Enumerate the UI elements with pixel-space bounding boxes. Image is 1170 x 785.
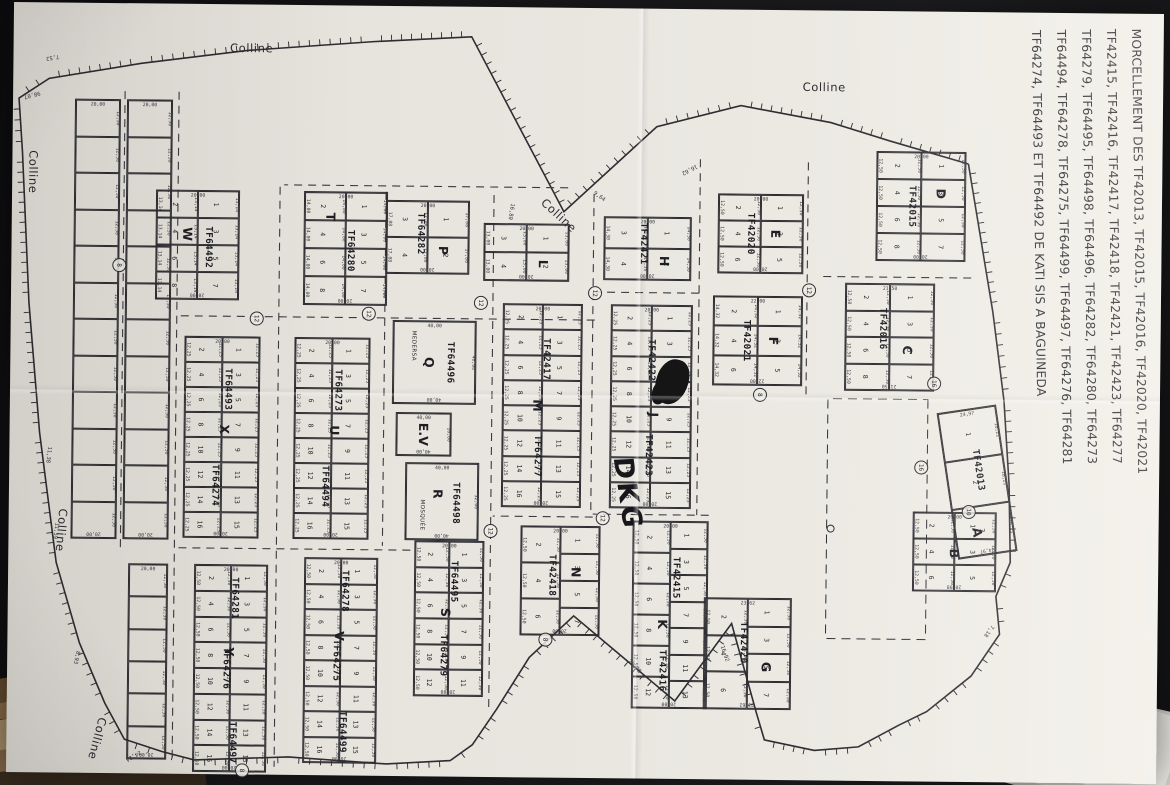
- lot-width-dim: 12,50: [665, 561, 670, 576]
- lot-cell: 12,50: [75, 136, 119, 173]
- lot-width-dim: 12,50: [916, 158, 921, 173]
- lot-width-dim: 13,14: [234, 224, 239, 239]
- lot-number: 9: [352, 671, 360, 675]
- lot-number: 11: [664, 440, 672, 448]
- lot-width-dim: 13,14: [192, 278, 197, 293]
- lot-cell: 12,50: [125, 392, 169, 429]
- lot-number: 6: [319, 260, 327, 264]
- lot-width-dim: 12,50: [111, 512, 116, 527]
- block-letter: P: [436, 245, 451, 254]
- lot-width-dim: 12,25: [295, 368, 300, 383]
- lot-number: 7: [352, 645, 360, 649]
- lot-cell: 712,25: [542, 380, 581, 406]
- lot-width-dim: 12,25: [576, 335, 581, 350]
- lot-cell: 1112,25: [541, 430, 580, 456]
- lot-number: 2: [720, 614, 728, 618]
- block-G: 112,50312,50512,50712,50212,5012,50412,5…: [703, 597, 792, 710]
- lot-depth-dim: 20,00: [339, 195, 354, 200]
- block-letter: H: [657, 255, 672, 266]
- lot-number: 1: [345, 349, 353, 353]
- lot-number: 8: [893, 244, 901, 248]
- lot-cell: 12,50: [126, 282, 170, 319]
- lot-cell: 512,50: [921, 206, 965, 233]
- lot-width-dim: 12,50: [166, 184, 171, 199]
- lot-number: 7: [682, 613, 690, 617]
- lot-width-dim: 14,32: [752, 362, 757, 377]
- lot-width-dim: 12,50: [304, 691, 309, 706]
- lot-cell: 12,50: [127, 136, 171, 173]
- lot-width-dim: 14,00: [305, 226, 310, 241]
- lot-number: 4: [535, 578, 543, 582]
- lot-width-dim: 12,50: [913, 570, 918, 585]
- lot-width-dim: 12,25: [294, 443, 299, 458]
- lot-number: 5: [234, 397, 242, 401]
- lot-row: 114,30214,30: [647, 217, 691, 279]
- lot-row: 112,25312,25512,25712,25912,251112,25131…: [330, 338, 369, 538]
- lot-width-dim: 12,50: [195, 570, 200, 585]
- lot-width-dim: 12,50: [160, 735, 165, 750]
- lot-width-dim: 12,50: [719, 200, 724, 215]
- lot-number: 8: [319, 288, 327, 292]
- lot-width-dim: 12,25: [577, 310, 582, 325]
- lot-width-dim: 12,50: [164, 367, 169, 382]
- lot-number: 5: [360, 260, 368, 264]
- lot-number: 6: [534, 614, 542, 618]
- lot-number: 4: [207, 601, 215, 605]
- lot-width-dim: 12,25: [254, 367, 259, 382]
- lot-number: 10: [516, 413, 524, 421]
- lot-width-dim: 12,25: [216, 442, 221, 457]
- lot-width-dim: 12,25: [610, 436, 615, 451]
- lot-cell: 12,50: [124, 465, 168, 502]
- lot-width-dim: 12,50: [163, 476, 168, 491]
- lot-number: 16: [306, 521, 314, 529]
- lot-number: 5: [344, 399, 352, 403]
- lot-width-dim: 12,50: [555, 537, 560, 552]
- lot-cell: 612,2512,25: [185, 386, 222, 411]
- lot-width-dim: 32,00: [473, 494, 478, 509]
- lot-number: 11: [682, 664, 690, 672]
- lot-width-dim: 13,14: [192, 251, 197, 266]
- lot-width-dim: 12,25: [575, 461, 580, 476]
- lot-number: 9: [682, 639, 690, 643]
- lot-cell: 12,50: [72, 428, 116, 465]
- tf-number-label: TF42021: [741, 319, 752, 361]
- lot-depth-dim: 20,00: [215, 339, 230, 344]
- lot-number: 2: [198, 347, 206, 351]
- lot-width-dim: 12,50: [960, 159, 965, 174]
- lot-number: 3: [666, 341, 674, 345]
- lot-number: 3: [235, 372, 243, 376]
- tf-number-label: TF42420: [737, 621, 748, 663]
- lot-number: 16: [315, 745, 323, 753]
- lot-width-dim: 12,25: [611, 411, 616, 426]
- lot-row: 12,5012,5012,5012,5012,5012,5012,5012,50…: [71, 99, 120, 537]
- lot-width-dim: 12,50: [960, 186, 965, 201]
- lot-number: 2: [730, 309, 738, 313]
- lot-number: 1: [212, 202, 220, 206]
- lot-width-dim: 12,25: [253, 517, 258, 532]
- lot-number: 3: [243, 602, 251, 606]
- lot-number: 7: [762, 693, 770, 697]
- tf-number-label: TF42417: [541, 338, 552, 380]
- block-annotation: MOSQUÉE: [418, 499, 424, 530]
- lot-width-dim: 12,50: [194, 699, 199, 714]
- lot-row: 12,5012,5012,5012,5012,5012,50: [127, 564, 167, 758]
- tf-number-label: TF64494: [319, 465, 330, 507]
- lot-cell: 12,50: [127, 693, 165, 726]
- lot-width-dim: 12,25: [363, 518, 368, 533]
- survey-point-badge: 8: [753, 387, 767, 401]
- lot-width-dim: 12,50: [162, 605, 167, 620]
- lot-width-dim: 12,50: [990, 571, 995, 586]
- lot-width-dim: 12,25: [294, 493, 299, 508]
- lot-number: 5: [460, 603, 468, 607]
- lot-width-dim: 12,50: [371, 640, 376, 655]
- lot-width-dim: 12,50: [304, 665, 309, 680]
- lot-width-dim: 12,50: [665, 592, 670, 607]
- lot-cell: 512,50: [230, 616, 266, 642]
- lot-width-dim: 12,50: [372, 615, 377, 630]
- lot-width-dim: 12,50: [719, 226, 724, 241]
- lot-depth-dim: 20,00: [91, 102, 106, 107]
- lot-number: 12: [624, 440, 632, 448]
- lot-width-dim: 14,00: [304, 254, 309, 269]
- lot-width-dim: 12,50: [632, 684, 637, 699]
- lot-number: 5: [353, 620, 361, 624]
- lot-cell: 12,50: [126, 246, 170, 283]
- block-R: 32,0040,0040,00TF64498RMOSQUÉE: [404, 462, 479, 541]
- street-centerline: [806, 162, 808, 394]
- lot-number: 2: [317, 568, 325, 572]
- block-F: 114,32314,32514,32214,3214,32414,3214,32…: [712, 295, 803, 386]
- lot-number: 2: [862, 295, 870, 299]
- lot-number: 8: [171, 283, 179, 287]
- lot-width-dim: 14,00: [340, 283, 345, 298]
- lot-width-dim: 12,50: [785, 633, 790, 648]
- street-centerline: [823, 276, 971, 278]
- lot-width-dim: 12,50: [111, 476, 116, 491]
- lot-width-dim: 12,25: [364, 343, 369, 358]
- lot-row: 212,2512,25412,2512,25612,2512,25812,251…: [183, 336, 222, 536]
- lot-width-dim: 40,00: [470, 355, 475, 370]
- terrain-label-colline: Colline: [26, 150, 40, 193]
- lot-cell: 312,50: [890, 310, 934, 337]
- block-N: 112,50312,50512,50712,50212,5012,50412,5…: [519, 525, 600, 636]
- lot-width-dim: 13,14: [234, 197, 239, 212]
- lot-width-dim: 12,50: [785, 660, 790, 675]
- lot-width-dim: 12,50: [305, 589, 310, 604]
- lot-width-dim: 12,50: [478, 547, 483, 562]
- lot-number: 14: [205, 728, 213, 736]
- lot-number: 11: [344, 472, 352, 480]
- lot-depth-dim: 20,00: [640, 271, 655, 276]
- lot-width-dim: 12,50: [915, 239, 920, 254]
- lot-number: 11: [352, 694, 360, 702]
- lot-width-dim: 12,25: [254, 417, 259, 432]
- lot-width-dim: 12,50: [166, 221, 171, 236]
- lot-depth-dim: 20,00: [332, 754, 347, 759]
- lot-width-dim: 12,50: [112, 330, 117, 345]
- lot-cell: 312,50: [747, 626, 790, 654]
- tf-number-label: TF64499: [337, 710, 348, 752]
- lot-cell: 12,50: [73, 355, 117, 392]
- lot-width-dim: 12,25: [502, 486, 507, 501]
- lot-number: 9: [242, 679, 250, 683]
- lot-number: 13: [555, 464, 563, 472]
- lot-number: 6: [729, 367, 737, 371]
- lot-number: 13: [233, 495, 241, 503]
- lot-number: 13: [351, 720, 359, 728]
- block-letter: K: [655, 619, 670, 629]
- lot-depth-dim: 22,00: [750, 376, 765, 381]
- lot-cell: 412,2512,25: [295, 362, 332, 387]
- block-C: 112,50312,50512,50712,50212,5012,50412,5…: [844, 282, 935, 391]
- lot-number: 4: [517, 340, 525, 344]
- lot-cell: 1012,2512,25: [184, 436, 221, 461]
- lot-width-dim: 12,50: [161, 702, 166, 717]
- terrain-label-colline: Colline: [803, 79, 846, 93]
- lot-width-dim: 12,25: [685, 437, 690, 452]
- lot-number: 5: [969, 576, 977, 580]
- lot-width-dim: 12,25: [363, 493, 368, 508]
- lot-depth-dim: 20,00: [338, 296, 353, 301]
- lot-number: 4: [308, 373, 316, 377]
- lot-width-dim: 12,50: [949, 570, 954, 585]
- block-annotation: MEDERSA: [410, 330, 416, 360]
- lot-depth-dim: 20,00: [141, 567, 156, 572]
- lot-number: 8: [197, 422, 205, 426]
- lot-width-dim: 12,25: [503, 410, 508, 425]
- lot-number: 1: [542, 236, 550, 240]
- lot-cell: 1112,50: [230, 694, 266, 720]
- lot-number: 4: [499, 264, 507, 268]
- lot-width-dim: 14,00: [381, 283, 386, 298]
- lot-width-dim: 12,50: [164, 403, 169, 418]
- lot-number: 2: [517, 314, 525, 318]
- survey-point-badge: 12: [474, 295, 488, 309]
- lot-width-dim: 12,50: [305, 563, 310, 578]
- lot-width-dim: 12,25: [686, 336, 691, 351]
- lot-cell: 412,5012,50: [415, 566, 449, 592]
- lot-width-dim: 14,30: [605, 225, 610, 240]
- lot-number: 6: [928, 575, 936, 579]
- lot-width-dim: 12,50: [928, 343, 933, 358]
- tf-number-label: TF42015: [906, 185, 917, 227]
- lot-width-dim: 13,14: [233, 251, 238, 266]
- lot-cell: 1012,2512,25: [611, 406, 651, 432]
- lot-width-dim: 12,25: [502, 435, 507, 450]
- lot-number: 6: [645, 597, 653, 601]
- lot-width-dim: 12,50: [415, 572, 420, 587]
- tf-number-label: TF64497: [226, 721, 237, 763]
- block-X: 112,25312,25512,25712,25912,251112,25131…: [182, 335, 260, 538]
- lot-cell: 912,25: [542, 405, 581, 431]
- lot-depth-dim: 20,00: [325, 341, 340, 346]
- lot-depth-dim: 40,00: [416, 447, 431, 452]
- lot-number: 6: [625, 366, 633, 370]
- lot-cell: 414,0014,00: [305, 220, 346, 248]
- lot-depth-dim: 20,00: [191, 193, 206, 198]
- lot-width-dim: 12,25: [502, 461, 507, 476]
- lot-cell: 812,2512,25: [611, 381, 651, 407]
- lot-number: 6: [861, 348, 869, 352]
- lot-cell: 1212,5012,50: [194, 693, 230, 719]
- lot-width-dim: 12,25: [537, 410, 542, 425]
- lot-width-dim: 14,30: [685, 257, 690, 272]
- lot-depth-dim: 21,50: [883, 286, 898, 291]
- survey-point-badge: 12: [596, 511, 610, 525]
- lot-number: 12: [316, 694, 324, 702]
- lot-width-dim: 12,50: [718, 252, 723, 267]
- lot-number: 6: [317, 619, 325, 623]
- lot-number: 11: [459, 678, 467, 686]
- lot-number: 1: [906, 295, 914, 299]
- lot-number: 1: [460, 552, 468, 556]
- lot-number: 4: [730, 338, 738, 342]
- lot-number: 3: [345, 374, 353, 378]
- block-H: 114,30214,30314,3014,30414,3014,3020,002…: [603, 216, 692, 281]
- block-letter: C: [900, 345, 915, 354]
- block-letter: J: [646, 412, 661, 417]
- lot-number: 1: [574, 538, 582, 542]
- lot-cell: 12,50: [127, 173, 171, 210]
- lot-number: 2: [319, 204, 327, 208]
- block-strip-1: 12,5012,5012,5012,5012,5012,5012,5012,50…: [122, 99, 173, 539]
- street-centerline: [178, 547, 410, 549]
- lot-width-dim: 12,50: [163, 513, 168, 528]
- block-V: 112,50312,50512,50712,50912,501112,50131…: [302, 557, 378, 764]
- lot-width-dim: 12,50: [114, 220, 119, 235]
- lot-width-dim: 12,50: [798, 200, 803, 215]
- lot-row: 12,5012,5012,5012,5012,5012,5012,5012,50…: [123, 100, 172, 538]
- lot-number: 6: [733, 257, 741, 261]
- lot-width-dim: 12,25: [294, 468, 299, 483]
- lot-depth-dim: 20,00: [519, 272, 534, 277]
- lot-width-dim: 12,50: [261, 700, 266, 715]
- lot-number: 9: [665, 417, 673, 421]
- lot-width-dim: 12,50: [929, 290, 934, 305]
- lot-cell: 1112,50: [340, 685, 376, 711]
- lot-number: 2: [171, 202, 179, 206]
- lot-width-dim: 12,50: [701, 661, 706, 676]
- lot-width-dim: 12,50: [477, 675, 482, 690]
- lot-depth-dim: 20,00: [643, 499, 658, 504]
- lot-width-dim: 12,50: [959, 240, 964, 255]
- lot-width-dim: 12,25: [503, 334, 508, 349]
- block-letter: X: [217, 424, 232, 434]
- lot-number: 1: [442, 217, 450, 221]
- lot-width-dim: 12,25: [327, 393, 332, 408]
- block-U: 112,25312,25512,25712,25912,251112,25131…: [292, 336, 370, 539]
- lot-width-dim: 14,30: [604, 256, 609, 271]
- lot-width-dim: 12,50: [798, 226, 803, 241]
- lot-number: 2: [308, 348, 316, 352]
- survey-point-badge: 12: [250, 311, 264, 325]
- block-letter: T: [324, 212, 339, 221]
- lot-width-dim: 12,50: [594, 533, 599, 548]
- lot-cell: 1112,25: [331, 463, 368, 488]
- lot-number: 8: [645, 628, 653, 632]
- lot-number: 3: [763, 638, 771, 642]
- lot-width-dim: 12,50: [161, 670, 166, 685]
- lot-number: 1: [666, 316, 674, 320]
- lot-number: 2: [626, 316, 634, 320]
- lot-width-dim: 14,32: [796, 333, 801, 348]
- lot-depth-dim: 20,00: [645, 308, 660, 313]
- lot-width-dim: 12,50: [303, 742, 308, 757]
- lot-width-dim: 12,50: [478, 598, 483, 613]
- lot-width-dim: 12,25: [611, 386, 616, 401]
- lot-number: 15: [233, 520, 241, 528]
- lot-width-dim: 12,25: [687, 311, 692, 326]
- lot-number: 4: [171, 229, 179, 233]
- lot-number: 15: [241, 754, 249, 762]
- lot-number: 1: [964, 431, 972, 436]
- terrain-label-colline: Colline: [230, 40, 273, 54]
- lot-cell: 12,50: [72, 464, 116, 501]
- lot-depth-dim: 20,00: [334, 561, 349, 566]
- lot-width-dim: 16,00: [445, 427, 450, 442]
- tf-number-label: TF42423: [643, 434, 654, 476]
- lot-width-dim: 12,25: [295, 418, 300, 433]
- lot-width-dim: 16,21: [1000, 470, 1007, 485]
- lot-number: 4: [426, 577, 434, 581]
- tf-number-label: TF64495: [449, 560, 460, 602]
- lot-depth-dim: 20,00: [534, 498, 549, 503]
- tf-number-label: TF64280: [345, 229, 356, 271]
- photo-of-cadastral-plan: MORCELLEMENT DES TF42013, TF42015, TF420…: [0, 0, 1170, 785]
- lot-row: 112,25312,25512,25712,25912,251112,25131…: [220, 337, 259, 537]
- lot-width-dim: 13,00: [485, 230, 490, 245]
- lot-number: 15: [351, 745, 359, 753]
- lot-width-dim: 13,00: [521, 259, 526, 274]
- tf-number-label: TF64498: [451, 482, 462, 524]
- lot-number: 4: [620, 261, 628, 265]
- lot-width-dim: 12,50: [162, 573, 167, 588]
- lot-width-dim: 12,50: [797, 252, 802, 267]
- lot-number: 2: [646, 535, 654, 539]
- lot-width-dim: 12,25: [254, 392, 259, 407]
- lot-width-dim: 12,25: [576, 386, 581, 401]
- lot-number: 10: [206, 676, 214, 684]
- tf-number-label: TF64281: [229, 577, 240, 619]
- lot-number: 3: [500, 236, 508, 240]
- lot-number: 6: [893, 217, 901, 221]
- lot-number: 3: [401, 217, 409, 221]
- lot-width-dim: 12,50: [414, 675, 419, 690]
- lot-width-dim: 12,50: [165, 294, 170, 309]
- lot-number: 9: [459, 655, 467, 659]
- lot-number: 6: [426, 603, 434, 607]
- lot-width-dim: 16,21: [993, 422, 1000, 437]
- lot-cell: 1312,25: [331, 488, 368, 513]
- block-D: 112,50312,50512,50712,50212,5012,50412,5…: [875, 151, 966, 262]
- lot-width-dim: 12,50: [262, 597, 267, 612]
- lot-width-dim: 12,50: [225, 699, 230, 714]
- lot-depth-dim: 20,00: [421, 203, 436, 208]
- lot-width-dim: 12,50: [594, 587, 599, 602]
- lot-width-dim: 12,50: [521, 537, 526, 552]
- lot-width-dim: 12,50: [225, 622, 230, 637]
- lot-width-dim: 14,32: [714, 303, 719, 318]
- tf-number-label: TF64277: [532, 434, 543, 476]
- lot-width-dim: 14,00: [382, 199, 387, 214]
- lot-width-dim: 12,50: [371, 691, 376, 706]
- tf-number-label: TF64273: [332, 369, 343, 411]
- lot-width-dim: 12,50: [633, 529, 638, 544]
- lot-width-dim: 12,25: [503, 360, 508, 375]
